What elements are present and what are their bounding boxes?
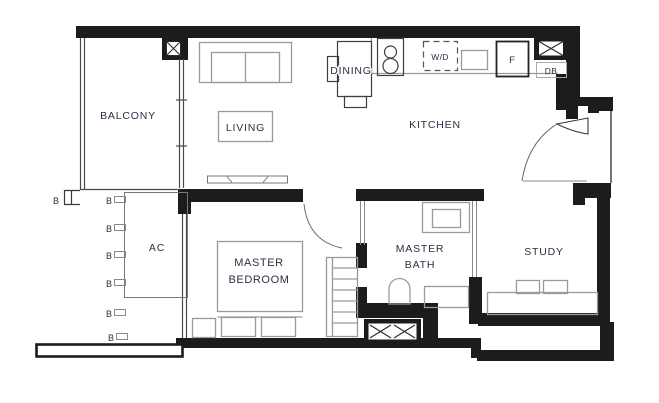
toilet-icon [389,279,410,305]
b-marker-1 [115,197,126,203]
living-furniture [200,43,292,184]
doors [304,118,588,248]
sink-icon [462,51,488,70]
hob-outline [378,39,404,76]
tv-tick-1 [227,177,232,183]
master-bath-label-line2: BATH [405,259,435,271]
b-label-6: B [108,333,114,343]
entrance-door-leaf [557,118,588,134]
bath-door-jamb-right [469,277,482,324]
fridge-label: F [509,55,515,66]
interior-walls [178,189,484,345]
entrance-door-swing-arc [522,124,557,181]
ac-ledge-label: AC [149,242,165,254]
bedroom-furniture [193,242,358,338]
living-label: LIVING [226,122,265,134]
balcony-label: BALCONY [100,110,156,122]
wall-bottom-right [477,350,614,361]
hob-burner-icon-2 [383,59,398,74]
bedroom-door-swing-arc [304,204,342,248]
study-label: STUDY [524,246,564,258]
pillow-1 [222,318,256,337]
study-chair-2 [544,281,568,294]
shaft2-box [369,324,417,340]
washer-dryer-label: W/D [431,52,448,62]
master-bath-label-line1: MASTER [396,243,445,255]
b-label-5: B [106,309,112,319]
dining-label: DINING [330,65,372,77]
wall-living-bedroom-tab [178,200,191,214]
wall-living-bedroom [178,189,303,202]
balustrade-bracket [65,191,81,205]
wall-top-right-column [566,26,580,104]
bath-fixtures [389,203,470,308]
balustrade-markers [65,191,128,340]
b-marker-4 [115,280,126,286]
b-marker-2 [115,225,126,231]
kitchen-counter [372,38,559,74]
b-label-2: B [106,224,112,234]
master-bedroom-label-line2: BEDROOM [228,274,289,286]
b-label-1: B [106,196,112,206]
wall-top [76,26,580,38]
db-label: DB [545,66,557,76]
dining-chair-bottom [345,97,367,108]
tv-console [208,176,288,183]
shaft-icon-top [534,37,568,60]
hob-burner-icon-1 [385,46,397,58]
wall-below-db [556,74,568,110]
wall-service-niche [423,303,438,345]
entry-recess [578,106,588,118]
kitchen-label: KITCHEN [409,119,461,131]
b-marker-6 [117,334,128,340]
bedside-table [193,319,216,338]
study-desk [488,293,598,315]
wall-entry-tab-right [588,104,599,113]
floor-plan-canvas: BALCONY LIVING DINING KITCHEN MASTER BED… [0,0,659,403]
wall-bottom-left-ledge [37,345,183,357]
wall-right [597,194,610,326]
b-label-3: B [106,251,112,261]
wall-entry-tab-lower [573,183,585,205]
column-icon [162,37,188,60]
pillow-2 [262,318,296,337]
tv-tick-2 [263,177,268,183]
wall-bath-top [356,189,484,201]
wall-bath-bottom [356,303,424,318]
b-label-4: B [106,279,112,289]
wardrobe [327,258,358,337]
b-label-0: B [53,196,59,206]
b-marker-5 [115,310,126,316]
study-chair-1 [517,281,540,294]
study-furniture [488,281,598,315]
vanity-basin-icon [433,210,461,228]
b-marker-3 [115,252,126,258]
shaft-icon-bottom [364,319,421,344]
master-bedroom-label-line1: MASTER [234,257,283,269]
floor-plan: BALCONY LIVING DINING KITCHEN MASTER BED… [0,0,659,403]
